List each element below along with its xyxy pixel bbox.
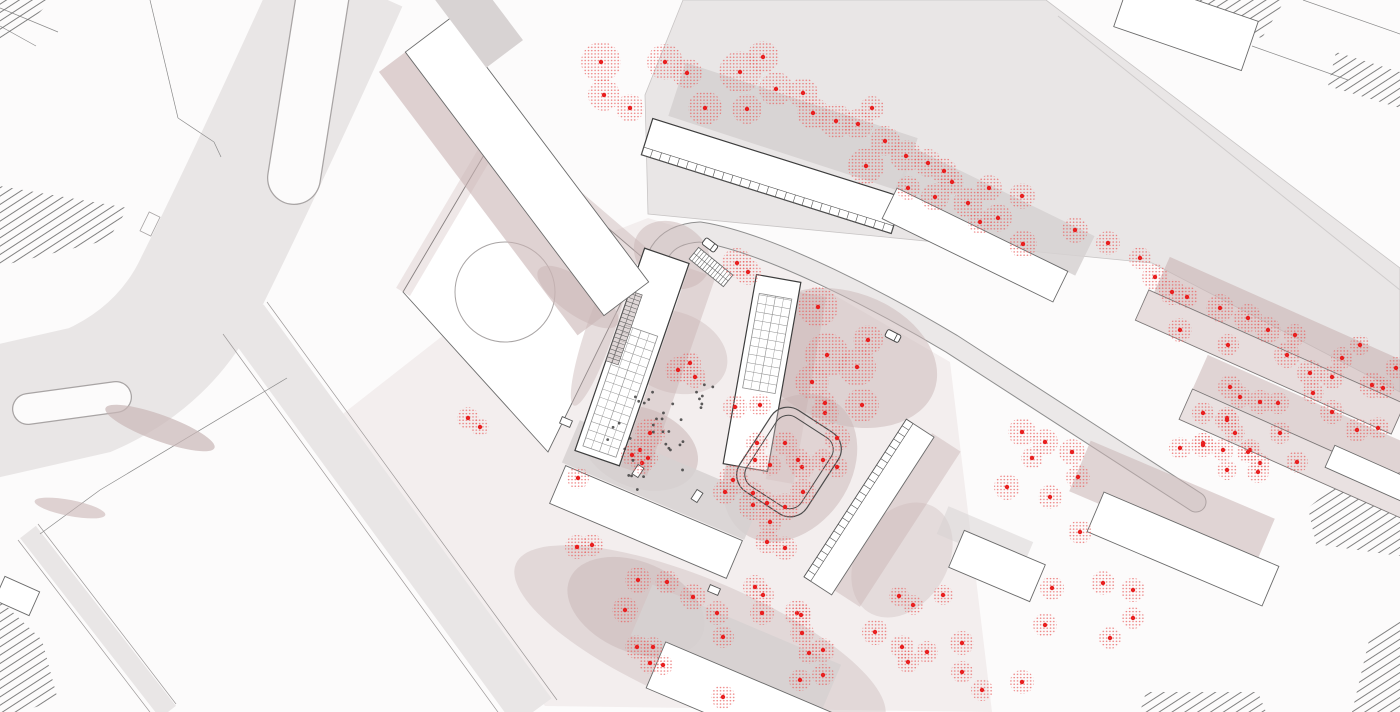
tree-trunk-dot bbox=[688, 361, 692, 365]
tree-trunk-dot bbox=[635, 645, 639, 649]
tree-trunk-dot bbox=[1238, 395, 1242, 399]
person-dot bbox=[669, 449, 672, 452]
tree-trunk-dot bbox=[1285, 353, 1289, 357]
person-dot bbox=[618, 422, 621, 425]
person-dot bbox=[682, 440, 685, 443]
tree-trunk-dot bbox=[1153, 275, 1157, 279]
person-dot bbox=[667, 430, 670, 433]
person-dot bbox=[703, 383, 706, 386]
tree-trunk-dot bbox=[1293, 333, 1297, 337]
tree-trunk-dot bbox=[590, 543, 594, 547]
person-dot bbox=[700, 403, 703, 406]
tree-trunk-dot bbox=[810, 380, 814, 384]
tree-trunk-dot bbox=[866, 338, 870, 342]
tree-trunk-dot bbox=[1256, 470, 1260, 474]
site-plan-page bbox=[0, 0, 1400, 712]
tree-trunk-dot bbox=[745, 107, 749, 111]
tree-trunk-dot bbox=[799, 613, 803, 617]
tree-trunk-dot bbox=[925, 650, 929, 654]
person-dot bbox=[623, 448, 626, 451]
median-island bbox=[294, 0, 326, 178]
tree-trunk-dot bbox=[950, 180, 954, 184]
person-dot bbox=[662, 412, 665, 415]
tree-trunk-dot bbox=[755, 441, 759, 445]
person-dot bbox=[679, 443, 682, 446]
tree-trunk-dot bbox=[576, 476, 580, 480]
tree-trunk-dot bbox=[753, 458, 757, 462]
tree-trunk-dot bbox=[721, 635, 725, 639]
tree-trunk-dot bbox=[1030, 456, 1034, 460]
tree-trunk-dot bbox=[996, 216, 1000, 220]
tree-trunk-dot bbox=[980, 688, 984, 692]
person-dot bbox=[629, 437, 632, 440]
tree-trunk-dot bbox=[1246, 450, 1250, 454]
tree-trunk-dot bbox=[1358, 343, 1362, 347]
tree-trunk-dot bbox=[960, 670, 964, 674]
tree-trunk-dot bbox=[663, 60, 667, 64]
tree-trunk-dot bbox=[1043, 440, 1047, 444]
tree-trunk-dot bbox=[1043, 623, 1047, 627]
tree-trunk-dot bbox=[825, 353, 829, 357]
tree-trunk-dot bbox=[1221, 448, 1225, 452]
tree-trunk-dot bbox=[966, 201, 970, 205]
tree-trunk-dot bbox=[733, 405, 737, 409]
tree-trunk-dot bbox=[821, 648, 825, 652]
person-dot bbox=[652, 431, 655, 434]
tree-trunk-dot bbox=[623, 608, 627, 612]
tree-trunk-dot bbox=[665, 580, 669, 584]
tree-trunk-dot bbox=[1138, 256, 1142, 260]
tree-trunk-dot bbox=[1218, 306, 1222, 310]
tree-trunk-dot bbox=[765, 540, 769, 544]
tree-trunk-dot bbox=[691, 595, 695, 599]
person-dot bbox=[698, 398, 701, 401]
tree-trunk-dot bbox=[1178, 446, 1182, 450]
person-dot bbox=[632, 459, 635, 462]
person-dot bbox=[671, 402, 674, 405]
site-plan-drawing bbox=[0, 0, 1400, 712]
person-dot bbox=[643, 402, 646, 405]
tree-trunk-dot bbox=[1266, 328, 1270, 332]
tree-trunk-dot bbox=[1005, 485, 1009, 489]
person-dot bbox=[647, 398, 650, 401]
tree-trunk-dot bbox=[904, 154, 908, 158]
tree-trunk-dot bbox=[1020, 680, 1024, 684]
tree-trunk-dot bbox=[768, 520, 772, 524]
tree-trunk-dot bbox=[835, 436, 839, 440]
person-dot bbox=[636, 488, 639, 491]
tree-trunk-dot bbox=[856, 122, 860, 126]
tree-trunk-dot bbox=[1050, 586, 1054, 590]
tree-trunk-dot bbox=[801, 91, 805, 95]
tree-trunk-dot bbox=[870, 106, 874, 110]
tree-trunk-dot bbox=[693, 375, 697, 379]
tree-trunk-dot bbox=[676, 368, 680, 372]
tree-trunk-dot bbox=[1185, 295, 1189, 299]
person-dot bbox=[700, 406, 703, 409]
person-dot bbox=[664, 443, 667, 446]
tree-trunk-dot bbox=[941, 593, 945, 597]
tree-trunk-dot bbox=[1131, 588, 1135, 592]
tree-trunk-dot bbox=[648, 431, 652, 435]
tree-trunk-dot bbox=[1020, 430, 1024, 434]
tree-trunk-dot bbox=[800, 631, 804, 635]
tree-trunk-dot bbox=[1233, 431, 1237, 435]
tree-trunk-dot bbox=[906, 660, 910, 664]
tree-trunk-dot bbox=[796, 458, 800, 462]
tree-trunk-dot bbox=[821, 458, 825, 462]
tree-trunk-dot bbox=[821, 673, 825, 677]
tree-trunk-dot bbox=[1311, 391, 1315, 395]
person-dot bbox=[680, 418, 683, 421]
tree-trunk-dot bbox=[1278, 431, 1282, 435]
tree-trunk-dot bbox=[651, 645, 655, 649]
tree-trunk-dot bbox=[1330, 410, 1334, 414]
tree-trunk-dot bbox=[926, 161, 930, 165]
person-dot bbox=[681, 469, 684, 472]
tree-trunk-dot bbox=[1381, 386, 1385, 390]
tree-trunk-dot bbox=[765, 501, 769, 505]
tree-trunk-dot bbox=[715, 611, 719, 615]
tree-trunk-dot bbox=[1201, 411, 1205, 415]
tree-trunk-dot bbox=[807, 651, 811, 655]
person-dot bbox=[642, 475, 645, 478]
tree-trunk-dot bbox=[860, 403, 864, 407]
tree-trunk-dot bbox=[855, 365, 859, 369]
tree-trunk-dot bbox=[1228, 385, 1232, 389]
tree-trunk-dot bbox=[602, 93, 606, 97]
tree-trunk-dot bbox=[648, 661, 652, 665]
tree-trunk-dot bbox=[1258, 400, 1262, 404]
tree-trunk-dot bbox=[897, 594, 901, 598]
tree-trunk-dot bbox=[823, 401, 827, 405]
tree-trunk-dot bbox=[1201, 443, 1205, 447]
tree-trunk-dot bbox=[599, 60, 603, 64]
tree-trunk-dot bbox=[466, 416, 470, 420]
tree-trunk-dot bbox=[1073, 228, 1077, 232]
tree-trunk-dot bbox=[1021, 242, 1025, 246]
tree-trunk-dot bbox=[906, 186, 910, 190]
person-dot bbox=[661, 417, 664, 420]
person-dot bbox=[634, 395, 637, 398]
tree-trunk-dot bbox=[761, 593, 765, 597]
tree-trunk-dot bbox=[1355, 428, 1359, 432]
tree-trunk-dot bbox=[646, 456, 650, 460]
tree-trunk-dot bbox=[1276, 401, 1280, 405]
tree-trunk-dot bbox=[751, 491, 755, 495]
tree-trunk-dot bbox=[738, 70, 742, 74]
person-dot bbox=[627, 474, 630, 477]
person-dot bbox=[652, 424, 655, 427]
tree-trunk-dot bbox=[1330, 375, 1334, 379]
tree-trunk-dot bbox=[883, 139, 887, 143]
tree-trunk-dot bbox=[783, 441, 787, 445]
tree-trunk-dot bbox=[834, 119, 838, 123]
tree-trunk-dot bbox=[1225, 418, 1229, 422]
tree-trunk-dot bbox=[835, 465, 839, 469]
tree-trunk-dot bbox=[731, 478, 735, 482]
tree-trunk-dot bbox=[1170, 290, 1174, 294]
tree-trunk-dot bbox=[783, 546, 787, 550]
person-dot bbox=[630, 474, 633, 477]
tree-trunk-dot bbox=[768, 463, 772, 467]
tree-trunk-dot bbox=[758, 403, 762, 407]
tree-trunk-dot bbox=[746, 270, 750, 274]
tree-trunk-dot bbox=[1106, 241, 1110, 245]
tree-trunk-dot bbox=[760, 611, 764, 615]
tree-trunk-dot bbox=[478, 425, 482, 429]
median-island bbox=[28, 397, 116, 409]
tree-trunk-dot bbox=[1376, 426, 1380, 430]
tree-trunk-dot bbox=[661, 663, 665, 667]
tree-trunk-dot bbox=[783, 505, 787, 509]
tree-trunk-dot bbox=[1178, 328, 1182, 332]
tree-trunk-dot bbox=[1394, 366, 1398, 370]
tree-trunk-dot bbox=[774, 87, 778, 91]
tree-trunk-dot bbox=[1131, 616, 1135, 620]
tree-trunk-dot bbox=[630, 453, 634, 457]
person-dot bbox=[711, 385, 714, 388]
tree-trunk-dot bbox=[1020, 194, 1024, 198]
tree-trunk-dot bbox=[628, 106, 632, 110]
tree-trunk-dot bbox=[703, 106, 707, 110]
tree-trunk-dot bbox=[801, 490, 805, 494]
tree-trunk-dot bbox=[864, 164, 868, 168]
tree-trunk-dot bbox=[1078, 530, 1082, 534]
tree-trunk-dot bbox=[1340, 356, 1344, 360]
person-dot bbox=[701, 395, 704, 398]
tree-trunk-dot bbox=[900, 645, 904, 649]
tree-trunk-dot bbox=[1246, 316, 1250, 320]
tree-trunk-dot bbox=[723, 490, 727, 494]
person-dot bbox=[662, 430, 665, 433]
person-dot bbox=[612, 426, 615, 429]
tree-trunk-dot bbox=[816, 305, 820, 309]
tree-trunk-dot bbox=[1070, 450, 1074, 454]
tree-trunk-dot bbox=[685, 71, 689, 75]
person-dot bbox=[651, 391, 654, 394]
tree-trunk-dot bbox=[933, 195, 937, 199]
tree-trunk-dot bbox=[1108, 636, 1112, 640]
tree-trunk-dot bbox=[1295, 460, 1299, 464]
person-dot bbox=[606, 438, 609, 441]
tree-trunk-dot bbox=[1226, 343, 1230, 347]
tree-trunk-dot bbox=[575, 545, 579, 549]
tree-trunk-dot bbox=[761, 55, 765, 59]
tree-trunk-dot bbox=[636, 578, 640, 582]
tree-trunk-dot bbox=[873, 630, 877, 634]
hatched-parcel bbox=[1140, 692, 1266, 712]
person-dot bbox=[655, 417, 658, 420]
tree-trunk-dot bbox=[721, 695, 725, 699]
tree-trunk-dot bbox=[1225, 468, 1229, 472]
tree-trunk-dot bbox=[1101, 581, 1105, 585]
tree-trunk-dot bbox=[911, 603, 915, 607]
person-dot bbox=[695, 391, 698, 394]
tree-trunk-dot bbox=[1048, 495, 1052, 499]
tree-trunk-dot bbox=[987, 186, 991, 190]
tree-trunk-dot bbox=[1076, 475, 1080, 479]
person-dot bbox=[637, 400, 640, 403]
tree-trunk-dot bbox=[798, 678, 802, 682]
tree-trunk-dot bbox=[960, 641, 964, 645]
tree-trunk-dot bbox=[811, 111, 815, 115]
tree-trunk-dot bbox=[978, 220, 982, 224]
tree-trunk-dot bbox=[1308, 371, 1312, 375]
